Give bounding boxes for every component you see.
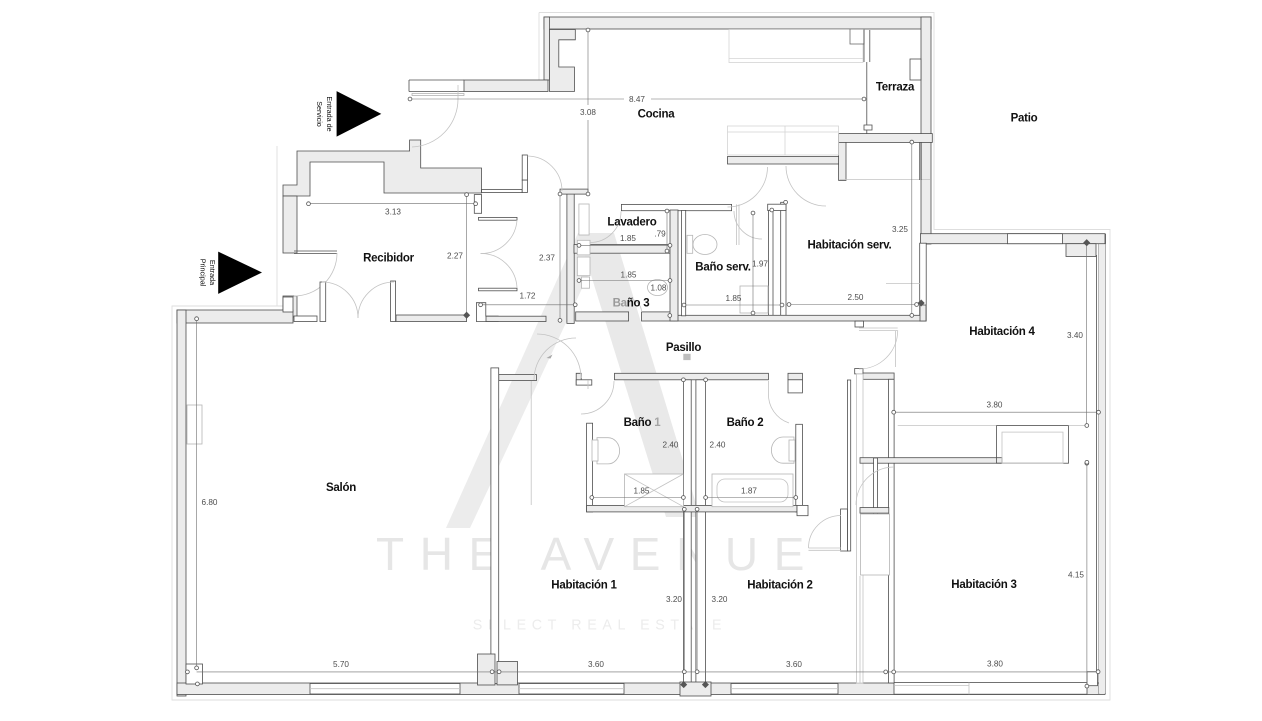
svg-text:3.20: 3.20 [666,595,682,604]
svg-text:3.20: 3.20 [712,595,728,604]
svg-text:1.85: 1.85 [634,487,650,496]
svg-text:6.80: 6.80 [202,498,218,507]
svg-text:2.40: 2.40 [663,441,679,450]
svg-text:2.40: 2.40 [710,441,726,450]
svg-text:3.80: 3.80 [987,660,1003,669]
svg-text:1.87: 1.87 [741,487,757,496]
svg-text:Habitación 2: Habitación 2 [747,580,812,592]
svg-text:1.97: 1.97 [752,260,768,269]
svg-text:2.27: 2.27 [447,252,463,261]
svg-text:3.80: 3.80 [987,401,1003,410]
svg-text:.79: .79 [654,230,666,239]
svg-text:5.70: 5.70 [333,660,349,669]
svg-text:Habitación 4: Habitación 4 [969,326,1035,338]
svg-text:Lavadero: Lavadero [607,217,656,229]
svg-text:Salón: Salón [326,482,356,494]
svg-text:1.85: 1.85 [620,234,636,243]
svg-text:2.37: 2.37 [539,254,555,263]
svg-text:Baño 1: Baño 1 [624,417,662,429]
svg-text:Habitación 3: Habitación 3 [951,579,1016,591]
svg-text:Recibidor: Recibidor [363,253,415,265]
svg-text:Patio: Patio [1011,113,1038,125]
svg-text:1.85: 1.85 [726,294,742,303]
svg-text:Pasillo: Pasillo [666,342,702,354]
svg-text:Servicio: Servicio [315,101,324,127]
svg-text:3.08: 3.08 [580,108,596,117]
svg-text:THE AVENUE: THE AVENUE [376,528,820,580]
svg-text:Baño 3: Baño 3 [613,298,650,310]
svg-text:3.60: 3.60 [786,660,802,669]
svg-text:Baño 2: Baño 2 [727,417,764,429]
svg-text:1.08: 1.08 [651,284,667,293]
svg-text:Habitación 1: Habitación 1 [551,580,617,592]
svg-text:Terraza: Terraza [876,82,915,94]
svg-text:3.40: 3.40 [1067,331,1083,340]
svg-text:2.50: 2.50 [848,293,864,302]
svg-text:Entrada de: Entrada de [325,96,334,131]
svg-text:Habitación serv.: Habitación serv. [808,240,892,252]
svg-text:Principal: Principal [199,259,208,287]
svg-text:Cocina: Cocina [638,109,676,121]
svg-text:Baño serv.: Baño serv. [695,262,751,274]
svg-text:3.13: 3.13 [385,208,401,217]
svg-text:3.25: 3.25 [892,225,908,234]
svg-text:Entrada: Entrada [208,260,217,285]
svg-text:3.60: 3.60 [588,660,604,669]
svg-text:1.72: 1.72 [520,292,536,301]
svg-text:4.15: 4.15 [1068,571,1084,580]
svg-text:8.47: 8.47 [629,95,645,104]
svg-text:1.85: 1.85 [621,271,637,280]
